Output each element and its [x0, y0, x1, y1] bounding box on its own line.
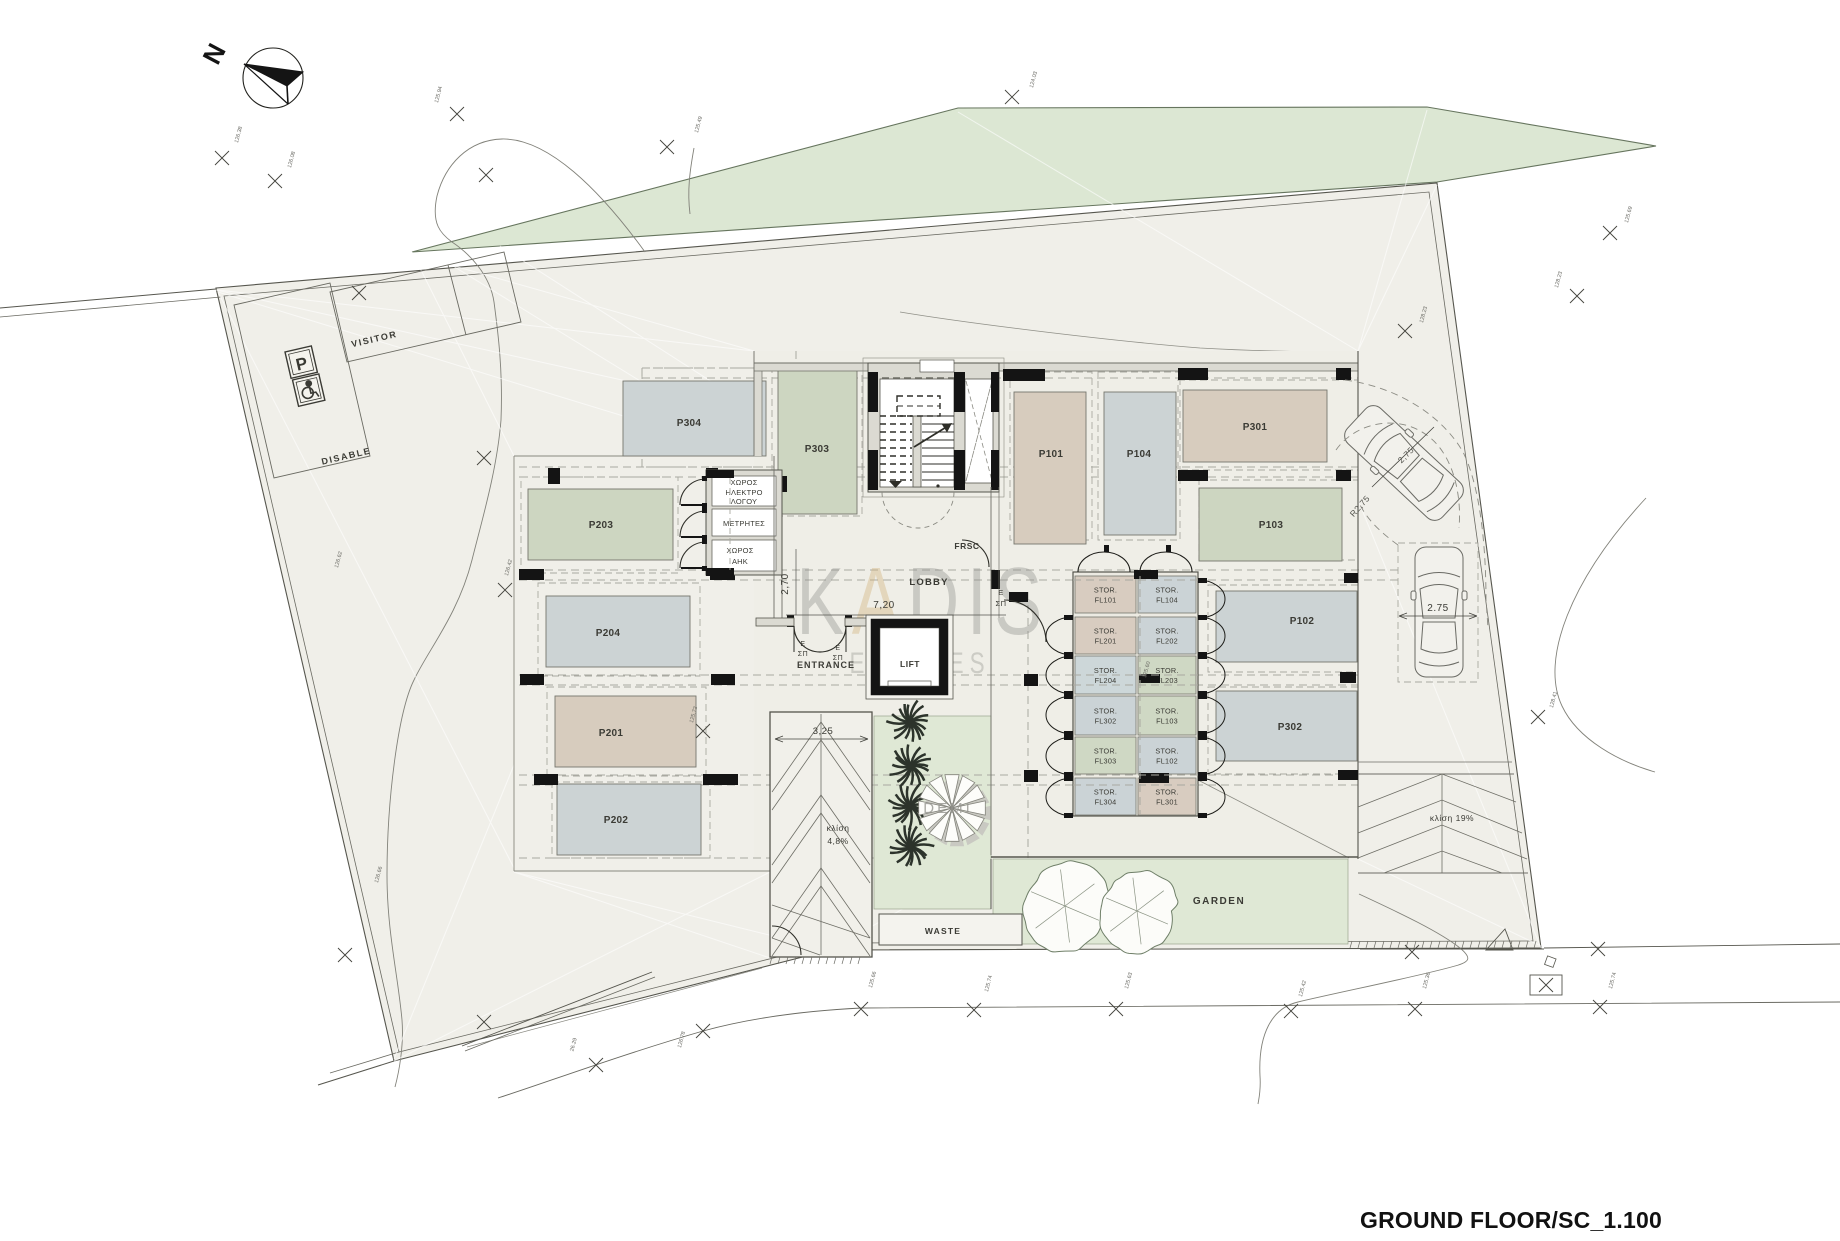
svg-text:2.75: 2.75 — [1427, 603, 1448, 614]
svg-text:STOR.: STOR. — [1155, 666, 1178, 675]
svg-text:FL103: FL103 — [1156, 717, 1178, 726]
svg-text:STOR.: STOR. — [1094, 788, 1117, 797]
svg-text:ΧΩΡΟΣ: ΧΩΡΟΣ — [730, 478, 757, 487]
svg-text:4,8%: 4,8% — [827, 836, 848, 846]
svg-text:FL301: FL301 — [1156, 798, 1178, 807]
svg-text:GROUND FLOOR/SC_1.100: GROUND FLOOR/SC_1.100 — [1360, 1207, 1662, 1233]
svg-text:DEMI: DEMI — [923, 800, 973, 817]
svg-text:GARDEN: GARDEN — [1193, 896, 1245, 907]
svg-text:STOR.: STOR. — [1094, 707, 1117, 716]
svg-text:FL304: FL304 — [1095, 798, 1117, 807]
svg-text:STOR.: STOR. — [1094, 627, 1117, 636]
svg-text:STOR.: STOR. — [1155, 747, 1178, 756]
svg-text:ΣΠ: ΣΠ — [798, 651, 808, 658]
svg-text:LOBBY: LOBBY — [909, 577, 948, 588]
svg-text:ΛΟΓΟΥ: ΛΟΓΟΥ — [731, 497, 757, 506]
svg-text:ΑΗΚ: ΑΗΚ — [732, 557, 748, 566]
svg-text:FL302: FL302 — [1095, 717, 1117, 726]
svg-text:3,25: 3,25 — [813, 726, 834, 737]
svg-text:STOR.: STOR. — [1094, 586, 1117, 595]
svg-text:P303: P303 — [805, 444, 830, 455]
svg-text:P204: P204 — [596, 628, 621, 639]
svg-text:E: E — [998, 588, 1004, 597]
svg-text:STOR.: STOR. — [1155, 586, 1178, 595]
svg-text:FL303: FL303 — [1095, 757, 1117, 766]
svg-text:WASTE: WASTE — [925, 926, 961, 936]
svg-text:E: E — [835, 645, 840, 652]
svg-text:P202: P202 — [604, 815, 629, 826]
svg-text:κλίση: κλίση — [827, 823, 850, 833]
svg-text:P201: P201 — [599, 728, 624, 739]
svg-text:LIFT: LIFT — [900, 659, 920, 669]
svg-text:STOR.: STOR. — [1094, 747, 1117, 756]
svg-text:FL204: FL204 — [1095, 676, 1117, 685]
svg-text:FRSC: FRSC — [954, 541, 979, 551]
svg-text:FL102: FL102 — [1156, 757, 1178, 766]
svg-text:ΧΩΡΟΣ: ΧΩΡΟΣ — [726, 546, 753, 555]
svg-text:E: E — [800, 641, 805, 648]
svg-text:STOR.: STOR. — [1155, 707, 1178, 716]
svg-text:P302: P302 — [1278, 722, 1303, 733]
svg-text:STOR.: STOR. — [1155, 788, 1178, 797]
svg-text:ΗΛΕΚΤΡΟ: ΗΛΕΚΤΡΟ — [725, 488, 762, 497]
svg-text:P102: P102 — [1290, 616, 1315, 627]
svg-text:P301: P301 — [1243, 422, 1268, 433]
svg-text:7,20: 7,20 — [873, 600, 894, 611]
svg-text:P103: P103 — [1259, 520, 1284, 531]
svg-text:ΣΠ: ΣΠ — [995, 599, 1006, 608]
svg-text:STOR.: STOR. — [1094, 666, 1117, 675]
svg-text:STOR.: STOR. — [1155, 627, 1178, 636]
svg-text:P203: P203 — [589, 520, 614, 531]
svg-text:ENTRANCE: ENTRANCE — [797, 660, 855, 670]
svg-text:2,70: 2,70 — [780, 573, 791, 594]
svg-text:FL101: FL101 — [1095, 596, 1117, 605]
svg-text:ΜΕΤΡΗΤΕΣ: ΜΕΤΡΗΤΕΣ — [723, 519, 765, 528]
svg-text:κλίση 19%: κλίση 19% — [1430, 813, 1474, 823]
svg-text:FL104: FL104 — [1156, 596, 1178, 605]
svg-text:FL201: FL201 — [1095, 637, 1117, 646]
svg-text:P104: P104 — [1127, 449, 1152, 460]
svg-text:P304: P304 — [677, 418, 702, 429]
svg-text:FL202: FL202 — [1156, 637, 1178, 646]
svg-text:P101: P101 — [1039, 449, 1064, 460]
